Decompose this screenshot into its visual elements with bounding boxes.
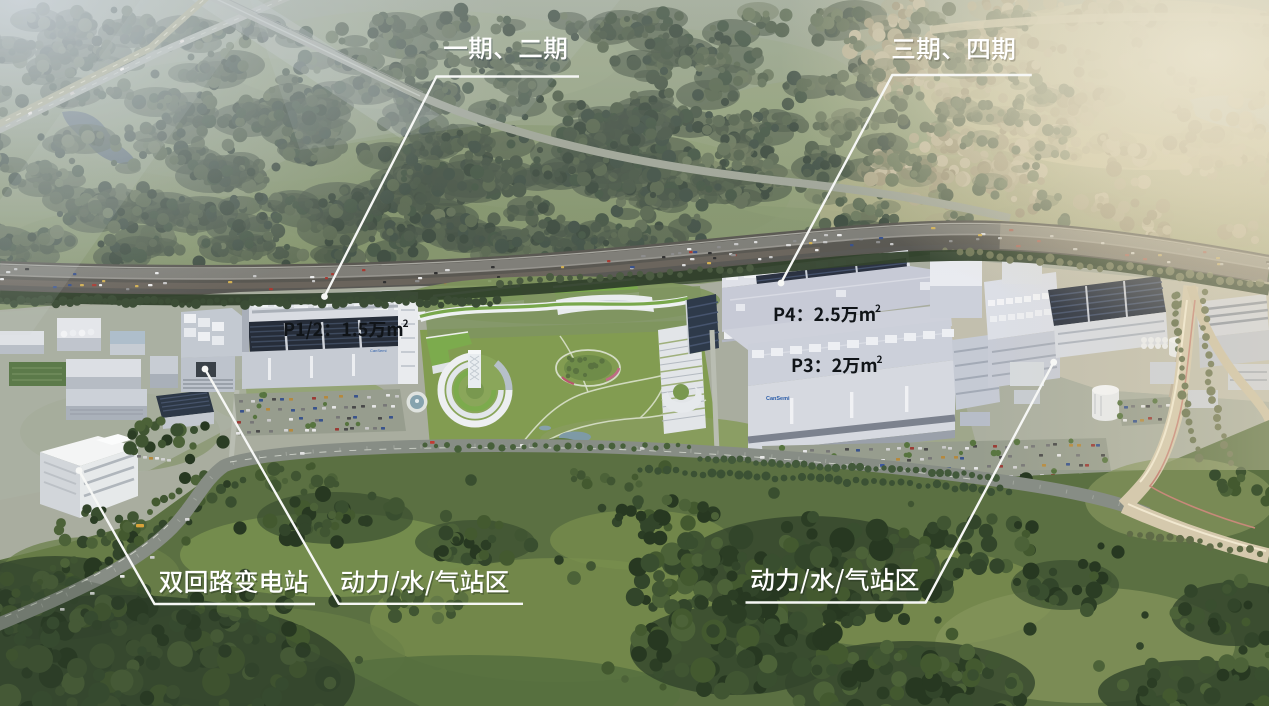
svg-text:CanSemi: CanSemi [370,348,387,353]
svg-text:CanSemi: CanSemi [766,396,790,402]
